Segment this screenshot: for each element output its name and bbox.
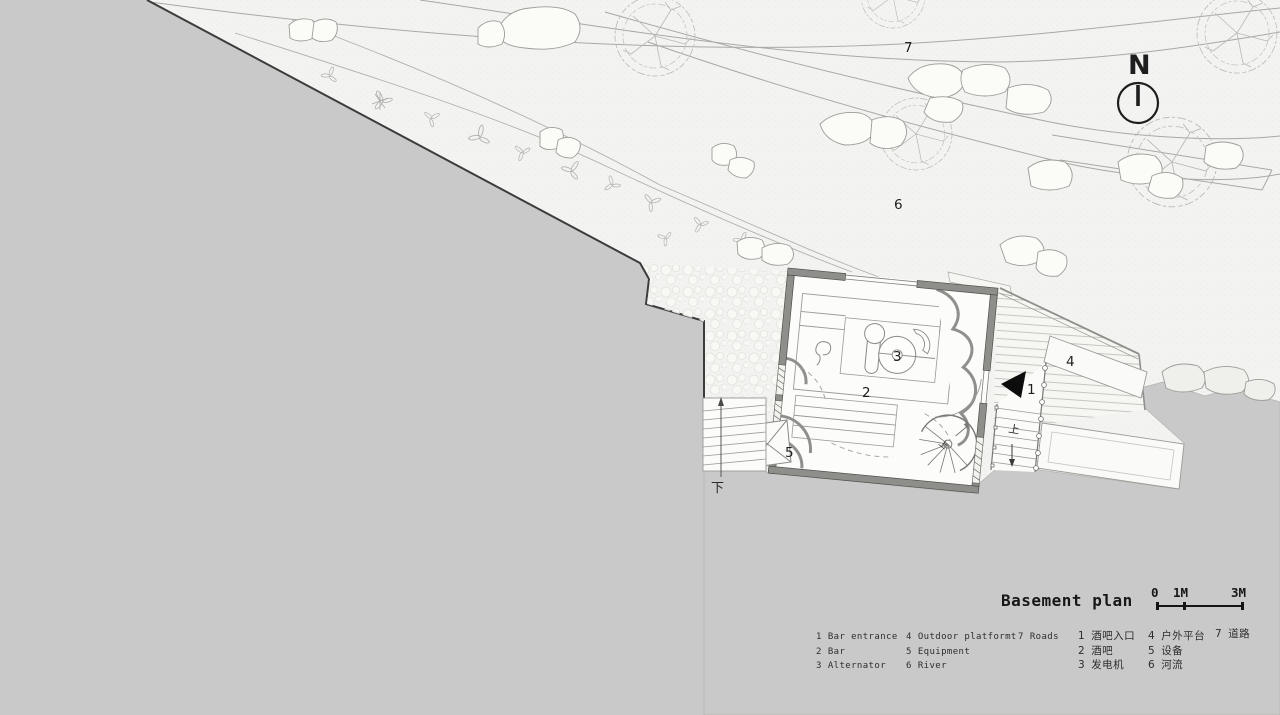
label-alternator: 3	[893, 349, 902, 365]
legend-item: 3发电机	[1078, 658, 1135, 673]
label-outdoor-platform: 4	[1066, 354, 1075, 370]
legend-en-column-2: 4Outdoor platformt 5Equipment 6River	[906, 630, 1017, 674]
scale-bar-tick	[1183, 602, 1186, 610]
label-up-stairs: 上	[1007, 422, 1020, 437]
north-letter: N	[1128, 50, 1151, 81]
legend-zh-column-3: 7道路	[1215, 627, 1250, 642]
label-bar: 2	[862, 385, 871, 401]
building	[768, 268, 998, 493]
legend-item: 7Roads	[1018, 630, 1059, 645]
plan-stage: 7 6 4 1 3 2 5 下 上 上 N Basement plan 0 1M…	[0, 0, 1280, 715]
legend-item: 4户外平台	[1148, 629, 1205, 644]
scale-bar	[1156, 605, 1244, 607]
stairs-down-left	[703, 397, 766, 477]
legend-item: 3Alternator	[816, 659, 898, 674]
scale-tick-label-0: 0	[1151, 585, 1159, 600]
legend-zh-column-2: 4户外平台 5设备 6河流	[1148, 629, 1205, 673]
legend-item: 6River	[906, 659, 1017, 674]
legend-item: 5设备	[1148, 644, 1205, 659]
page-title: Basement plan	[1001, 591, 1133, 610]
legend-item: 6河流	[1148, 658, 1205, 673]
scale-bar-tick	[1156, 602, 1159, 610]
legend-item: 2酒吧	[1078, 644, 1135, 659]
legend-item: 4Outdoor platformt	[906, 630, 1017, 645]
scale-tick-label-1m: 1M	[1173, 585, 1188, 600]
legend-item: 2Bar	[816, 645, 898, 660]
label-down: 下	[711, 481, 724, 496]
legend-item: 1Bar entrance	[816, 630, 898, 645]
label-bar-entrance: 1	[1027, 382, 1036, 398]
legend-item: 1酒吧入口	[1078, 629, 1135, 644]
legend-en-column-1: 1Bar entrance 2Bar 3Alternator	[816, 630, 898, 674]
label-equipment: 5	[785, 445, 794, 461]
legend-zh-column-1: 1酒吧入口 2酒吧 3发电机	[1078, 629, 1135, 673]
label-roads: 7	[904, 40, 913, 56]
scale-tick-label-3m: 3M	[1231, 585, 1246, 600]
legend-item: 7道路	[1215, 627, 1250, 642]
label-river: 6	[894, 197, 903, 213]
legend-en-column-3: 7Roads	[1018, 630, 1059, 645]
scale-bar-tick	[1241, 602, 1244, 610]
legend-item: 5Equipment	[906, 645, 1017, 660]
